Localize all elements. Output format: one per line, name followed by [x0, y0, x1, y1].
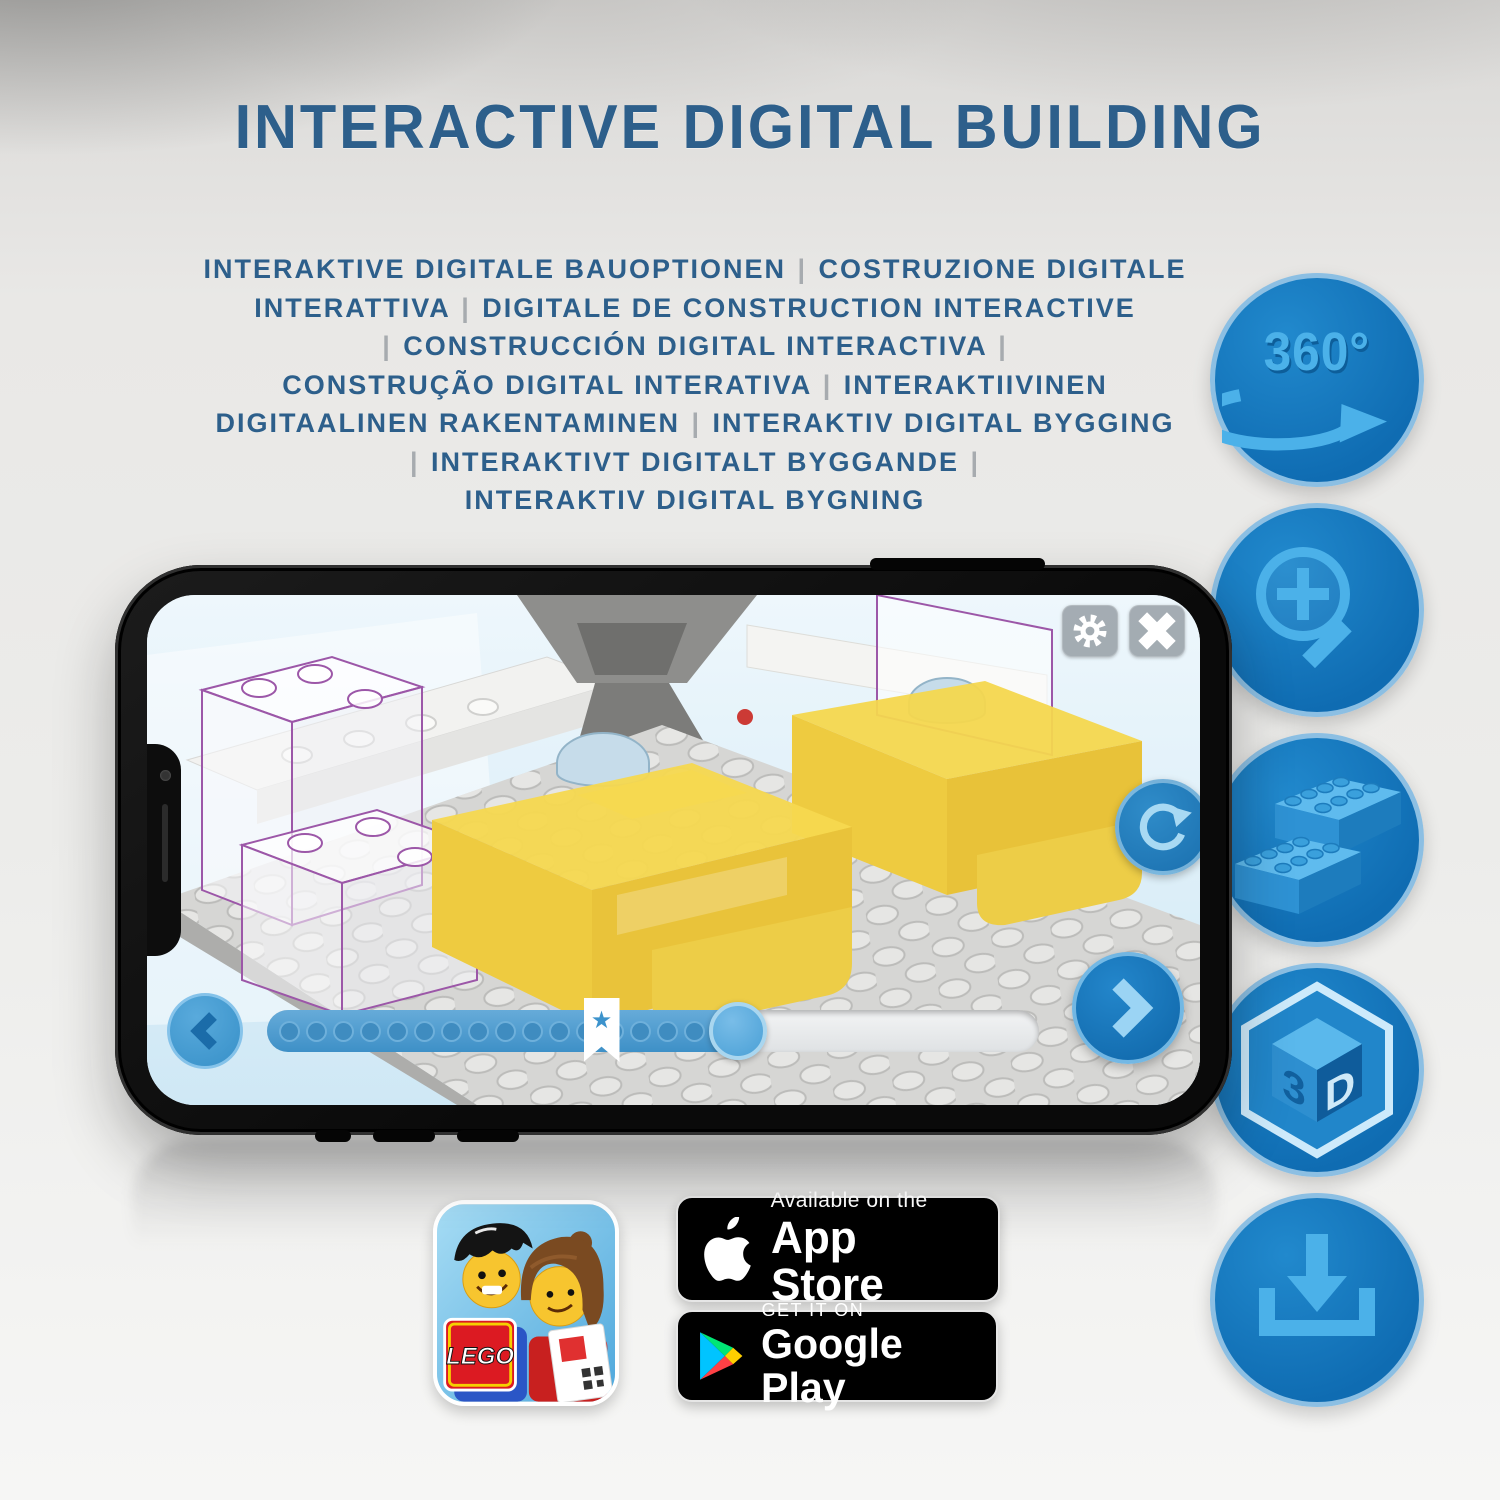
close-button[interactable] — [1129, 605, 1185, 657]
360-rotation-badge: 360° — [1210, 273, 1424, 487]
pipe-separator: | — [380, 331, 394, 361]
progress-dot — [630, 1021, 651, 1042]
marketing-page: INTERACTIVE DIGITAL BUILDING INTERAKTIVE… — [0, 0, 1500, 1500]
previous-step-button[interactable] — [167, 993, 243, 1069]
3d-cube-icon: 3 D — [1219, 972, 1415, 1168]
progress-dot — [657, 1021, 678, 1042]
pipe-separator: | — [459, 293, 473, 323]
progress-dot — [684, 1021, 705, 1042]
mute-switch — [315, 1130, 351, 1142]
pipe-separator: | — [795, 254, 809, 284]
next-step-button[interactable] — [1072, 952, 1184, 1064]
settings-button[interactable] — [1062, 605, 1118, 657]
subtitle-line: INTERATTIVA | DIGITALE DE CONSTRUCTION I… — [95, 289, 1295, 328]
google-play-name: Google Play — [761, 1322, 977, 1410]
power-button — [870, 558, 1045, 570]
progress-dot — [495, 1021, 516, 1042]
pipe-separator: | — [408, 447, 422, 477]
build-progress-slider[interactable]: ★ — [267, 1010, 1039, 1052]
phone-reflection — [132, 1140, 1217, 1290]
chevron-right-icon — [1096, 976, 1160, 1040]
pipe-separator: | — [689, 408, 703, 438]
magnifier-plus-icon — [1237, 530, 1397, 690]
front-camera — [160, 770, 171, 781]
progress-fill — [267, 1010, 738, 1052]
lego-app-artwork: LEGO — [437, 1204, 615, 1402]
subtitle-line: INTERAKTIVE DIGITALE BAUOPTIONEN | COSTR… — [95, 250, 1295, 289]
download-tray-icon — [1237, 1220, 1397, 1380]
smartphone: ★ — [115, 565, 1232, 1135]
close-x-icon — [1136, 610, 1178, 652]
progress-dot — [522, 1021, 543, 1042]
gear-icon — [1068, 609, 1112, 653]
page-title: INTERACTIVE DIGITAL BUILDING — [30, 92, 1470, 163]
zoom-badge — [1210, 503, 1424, 717]
rotate-model-button[interactable] — [1115, 779, 1200, 875]
app-store-badge[interactable]: Available on the App Store — [676, 1196, 1000, 1302]
download-badge — [1210, 1193, 1424, 1407]
360-label: 360° — [1264, 321, 1370, 383]
bricks-badge — [1210, 733, 1424, 947]
3d-view-badge: 3 D — [1210, 963, 1424, 1177]
lego-app-icon: LEGO — [433, 1200, 619, 1406]
app-store-tagline: Available on the — [771, 1190, 980, 1212]
progress-dot — [333, 1021, 354, 1042]
subtitle-translations: INTERAKTIVE DIGITALE BAUOPTIONEN | COSTR… — [95, 250, 1295, 520]
pipe-separator: | — [969, 447, 983, 477]
360-rotate-arrow-icon — [1222, 383, 1412, 453]
pipe-separator: | — [821, 370, 835, 400]
google-play-triangle-icon — [698, 1328, 743, 1384]
progress-dot — [306, 1021, 327, 1042]
google-play-tagline: GET IT ON — [761, 1301, 982, 1320]
phone-notch — [147, 744, 181, 956]
progress-dot — [414, 1021, 435, 1042]
lego-logo-text: LEGO — [446, 1343, 514, 1370]
app-screen: ★ — [147, 595, 1200, 1105]
subtitle-line: | CONSTRUCCIÓN DIGITAL INTERACTIVA | — [95, 327, 1295, 366]
subtitle-line: | INTERAKTIVT DIGITALT BYGGANDE | — [95, 443, 1295, 482]
lego-bricks-icon — [1229, 752, 1405, 928]
progress-dot — [468, 1021, 489, 1042]
subtitle-line: CONSTRUÇÃO DIGITAL INTERATIVA | INTERAKT… — [95, 366, 1295, 405]
rotate-arrow-icon — [1133, 797, 1193, 857]
progress-dot — [279, 1021, 300, 1042]
earpiece-speaker — [162, 804, 168, 882]
progress-dot — [441, 1021, 462, 1042]
progress-dot — [360, 1021, 381, 1042]
subtitle-line: DIGITAALINEN RAKENTAMINEN | INTERAKTIV D… — [95, 404, 1295, 443]
chevron-left-icon — [185, 1011, 225, 1051]
progress-dot — [387, 1021, 408, 1042]
google-play-badge[interactable]: GET IT ON Google Play — [676, 1310, 998, 1402]
volume-button — [373, 1130, 435, 1142]
subtitle-line: INTERAKTIV DIGITAL BYGNING — [95, 481, 1295, 520]
apple-logo-icon — [702, 1217, 753, 1281]
progress-thumb[interactable] — [709, 1002, 767, 1060]
progress-dot — [549, 1021, 570, 1042]
volume-button — [457, 1130, 519, 1142]
pipe-separator: | — [996, 331, 1010, 361]
app-store-name: App Store — [771, 1214, 976, 1309]
